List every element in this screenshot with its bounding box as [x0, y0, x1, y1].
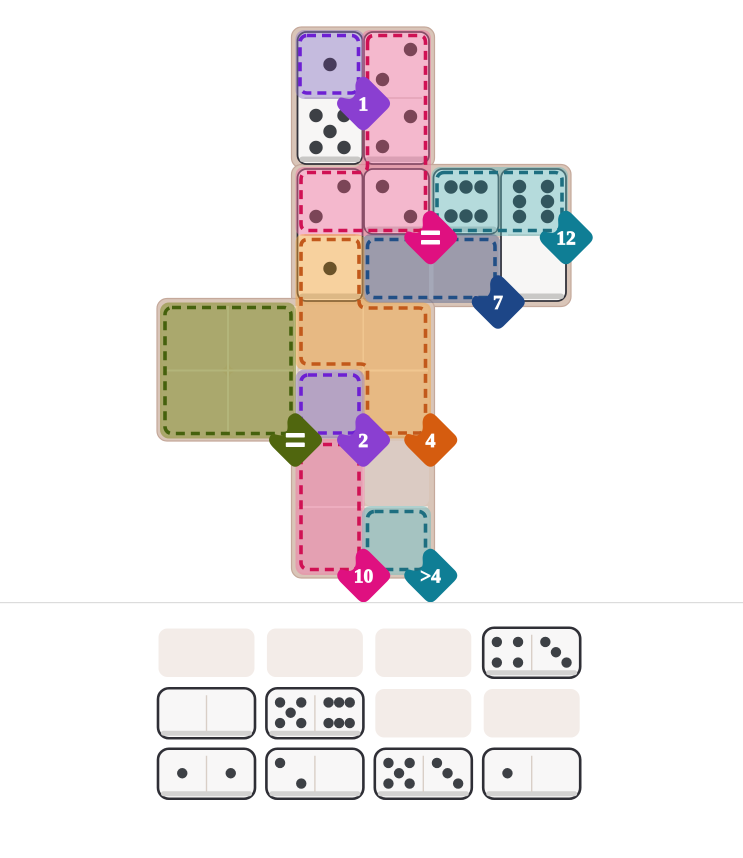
svg-text:7: 7 — [493, 292, 503, 314]
svg-text:10: 10 — [354, 566, 374, 587]
svg-text:1: 1 — [358, 93, 368, 115]
svg-text:2: 2 — [358, 430, 368, 452]
svg-text:4: 4 — [426, 430, 436, 452]
svg-text:12: 12 — [556, 228, 576, 249]
svg-text:>4: >4 — [420, 566, 441, 587]
